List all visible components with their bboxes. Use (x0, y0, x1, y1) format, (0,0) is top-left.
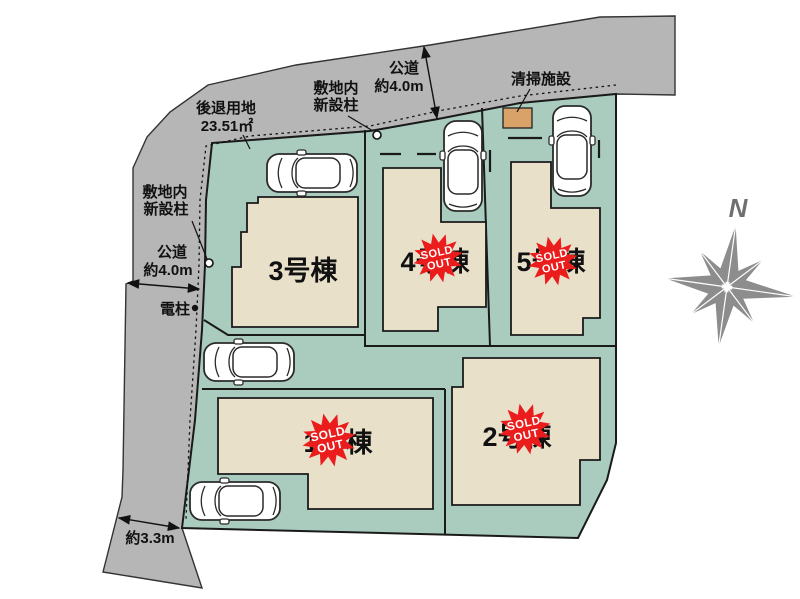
new-pole-label-left-line2: 新設柱 (143, 200, 188, 218)
setback-label-line1: 後退用地 (195, 99, 256, 117)
car-icon (267, 150, 357, 196)
car-icon (440, 121, 486, 211)
site-plan-canvas: 3号棟 4号棟 5号棟 1号棟 2号棟 SOLD OUT SOLD OUT SO… (0, 0, 800, 599)
road-left-label-line2: 約4.0m (143, 261, 192, 279)
new-pole-label-top-line1: 敷地内 (313, 79, 358, 97)
new-pole-label-top-line2: 新設柱 (313, 96, 358, 114)
site-plan: 3号棟 4号棟 5号棟 1号棟 2号棟 SOLD OUT SOLD OUT SO… (0, 0, 800, 599)
building-3-label: 3号棟 (268, 256, 338, 286)
compass-rose (655, 215, 800, 360)
north-label: N (729, 193, 749, 223)
road-top-label-line1: 公道 (389, 59, 419, 77)
setback-label-line2: 23.51㎡ (201, 117, 254, 135)
new-pole-marker-top (373, 131, 381, 139)
road-left-label-line1: 公道 (157, 243, 187, 261)
utility-pole-dot (192, 305, 198, 311)
new-pole-marker-left (205, 259, 213, 267)
car-icon (204, 339, 294, 385)
road-bottom-width-label: 約3.3m (125, 529, 174, 547)
utility-pole-label: 電柱 (160, 300, 190, 318)
car-icon (549, 106, 595, 196)
road-top-label-line2: 約4.0m (374, 77, 423, 95)
cleaning-facility-label: 清掃施設 (511, 70, 572, 88)
new-pole-label-left-line1: 敷地内 (142, 183, 187, 201)
car-icon (190, 478, 280, 524)
